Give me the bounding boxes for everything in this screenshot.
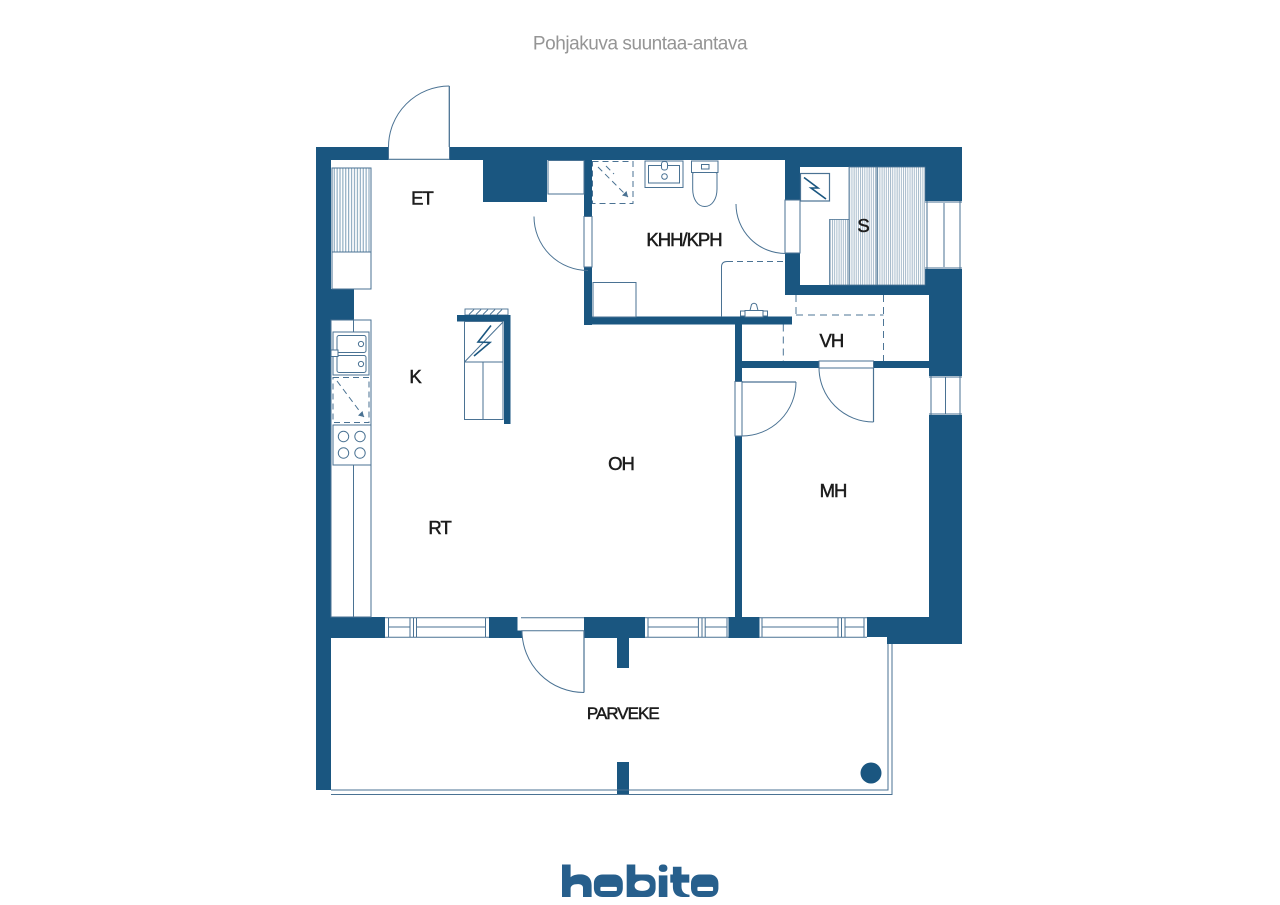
- svg-text:S: S: [857, 215, 869, 236]
- svg-text:VH: VH: [820, 330, 844, 351]
- svg-text:K: K: [409, 366, 422, 387]
- svg-text:OH: OH: [608, 453, 634, 474]
- svg-text:KHH/KPH: KHH/KPH: [646, 229, 721, 250]
- svg-text:Pohjakuva suuntaa-antava: Pohjakuva suuntaa-antava: [533, 34, 748, 55]
- svg-text:ET: ET: [411, 188, 433, 209]
- svg-text:MH: MH: [820, 480, 847, 501]
- svg-text:PARVEKE: PARVEKE: [587, 704, 659, 723]
- svg-text:RT: RT: [428, 517, 451, 538]
